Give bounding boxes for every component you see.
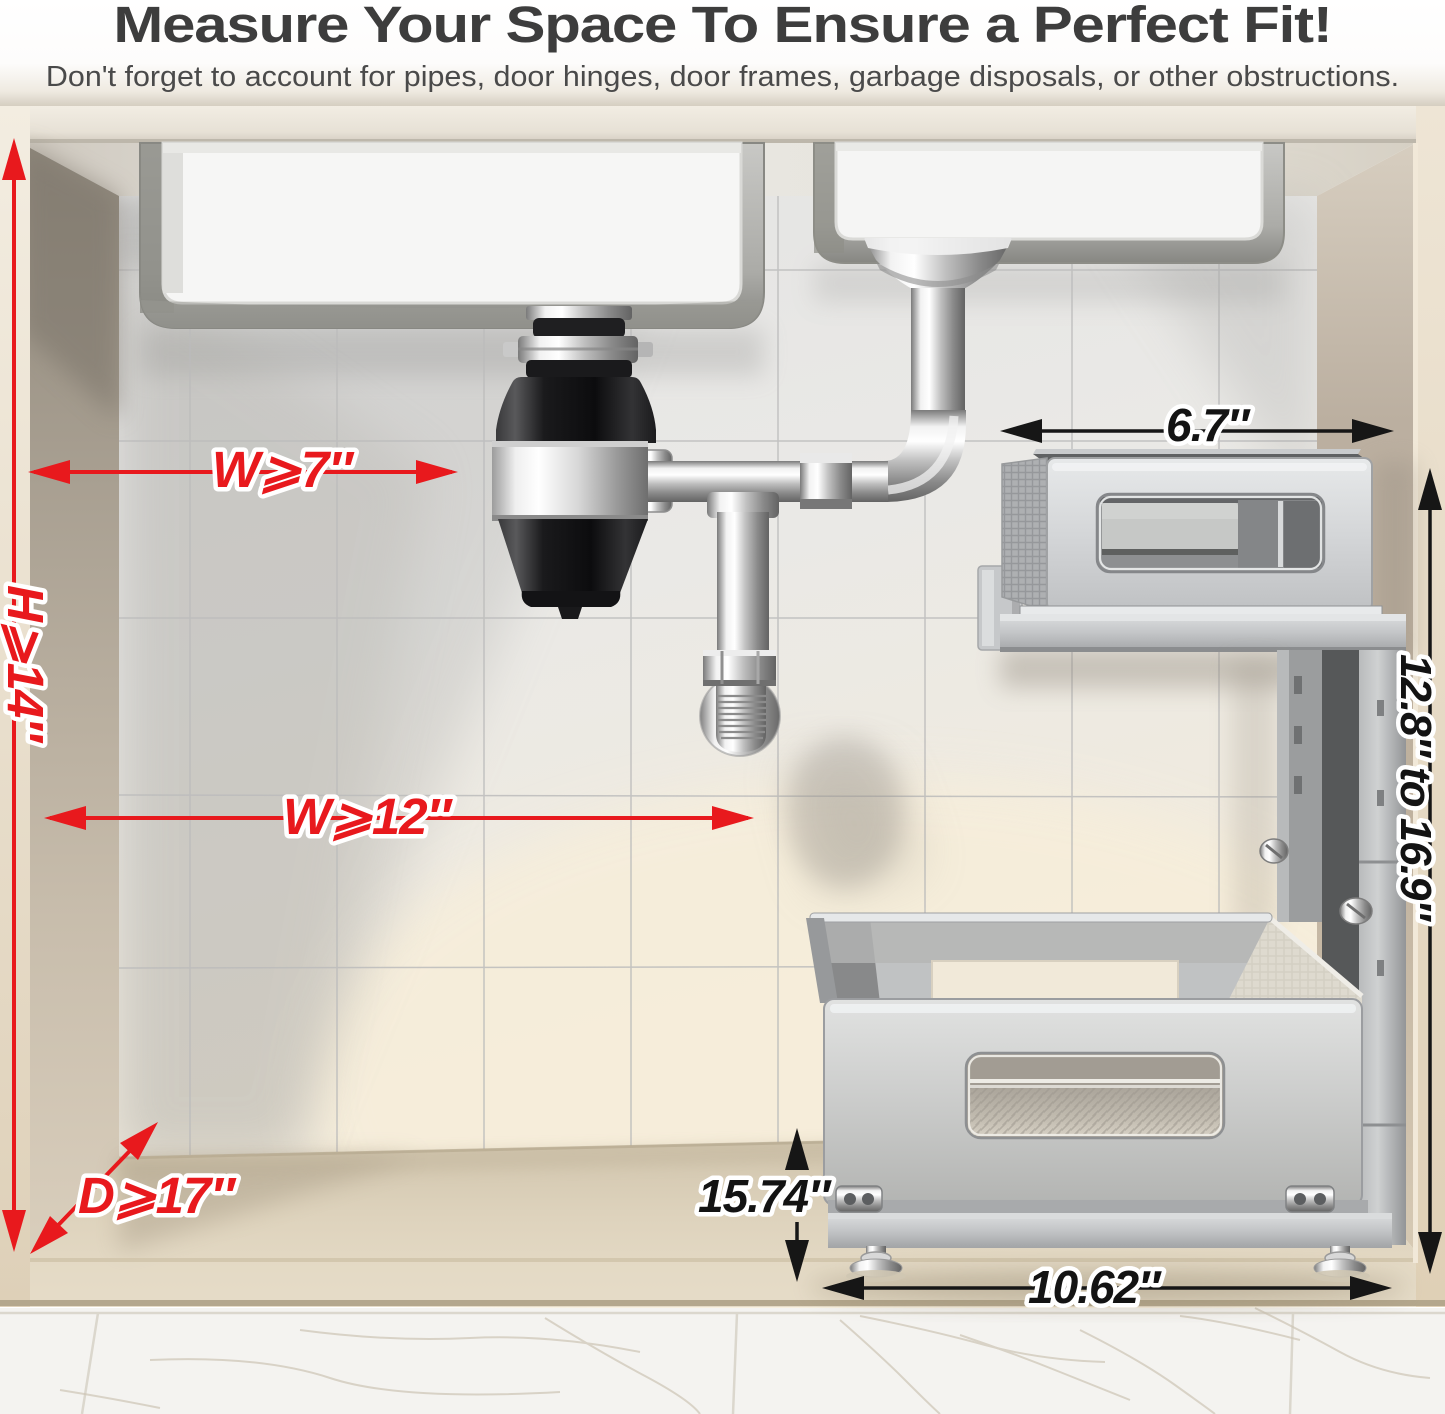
svg-text:W⩾12″: W⩾12″ xyxy=(283,788,454,845)
svg-text:H⩾14″: H⩾14″ xyxy=(0,585,54,744)
svg-text:D⩾17″: D⩾17″ xyxy=(78,1167,237,1224)
svg-text:15.74″: 15.74″ xyxy=(698,1170,832,1222)
svg-text:10.62″: 10.62″ xyxy=(1028,1261,1162,1313)
svg-text:6.7″: 6.7″ xyxy=(1166,399,1251,451)
svg-text:12.8″ to 16.9″: 12.8″ to 16.9″ xyxy=(1391,654,1440,922)
svg-text:W⩾7″: W⩾7″ xyxy=(212,441,355,498)
